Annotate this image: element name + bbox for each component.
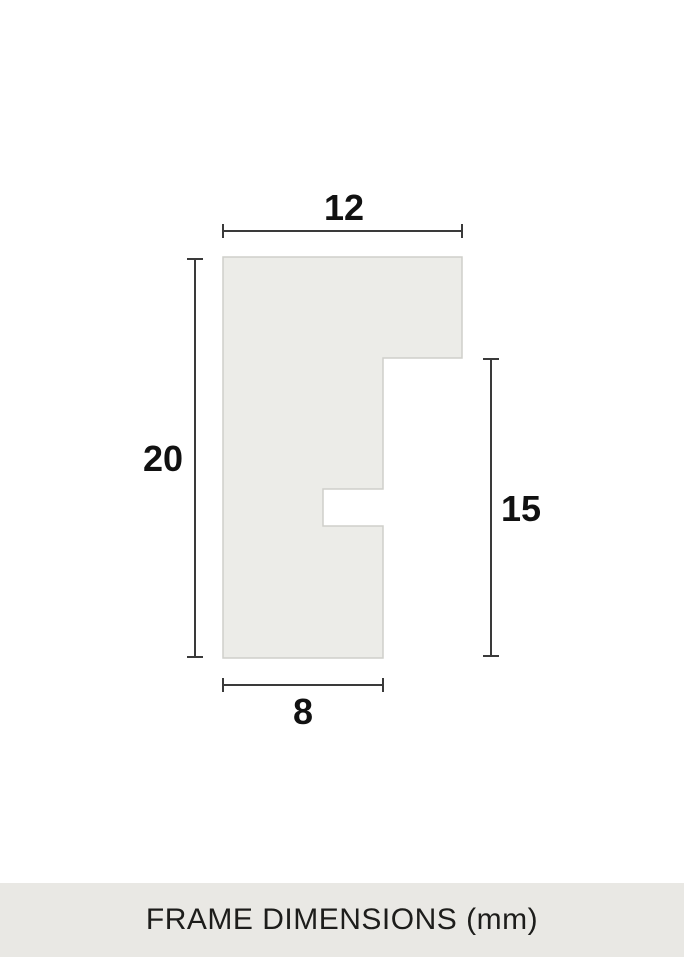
dimension-line-left	[187, 259, 203, 657]
dimension-label-right-height: 15	[501, 491, 541, 527]
frame-profile-shape	[223, 257, 462, 658]
frame-dimensions-diagram: 12 20 15 8 FRAME DIMENSIONS (mm)	[0, 0, 684, 957]
profile-drawing	[0, 0, 684, 957]
dimension-line-right	[483, 359, 499, 656]
footer-bar: FRAME DIMENSIONS (mm)	[0, 883, 684, 957]
dimension-label-left-height: 20	[143, 441, 183, 477]
dimension-line-bottom	[223, 678, 383, 692]
dimension-label-bottom-width: 8	[293, 694, 313, 730]
footer-title: FRAME DIMENSIONS (mm)	[146, 903, 538, 937]
dimension-label-top-width: 12	[324, 190, 364, 226]
